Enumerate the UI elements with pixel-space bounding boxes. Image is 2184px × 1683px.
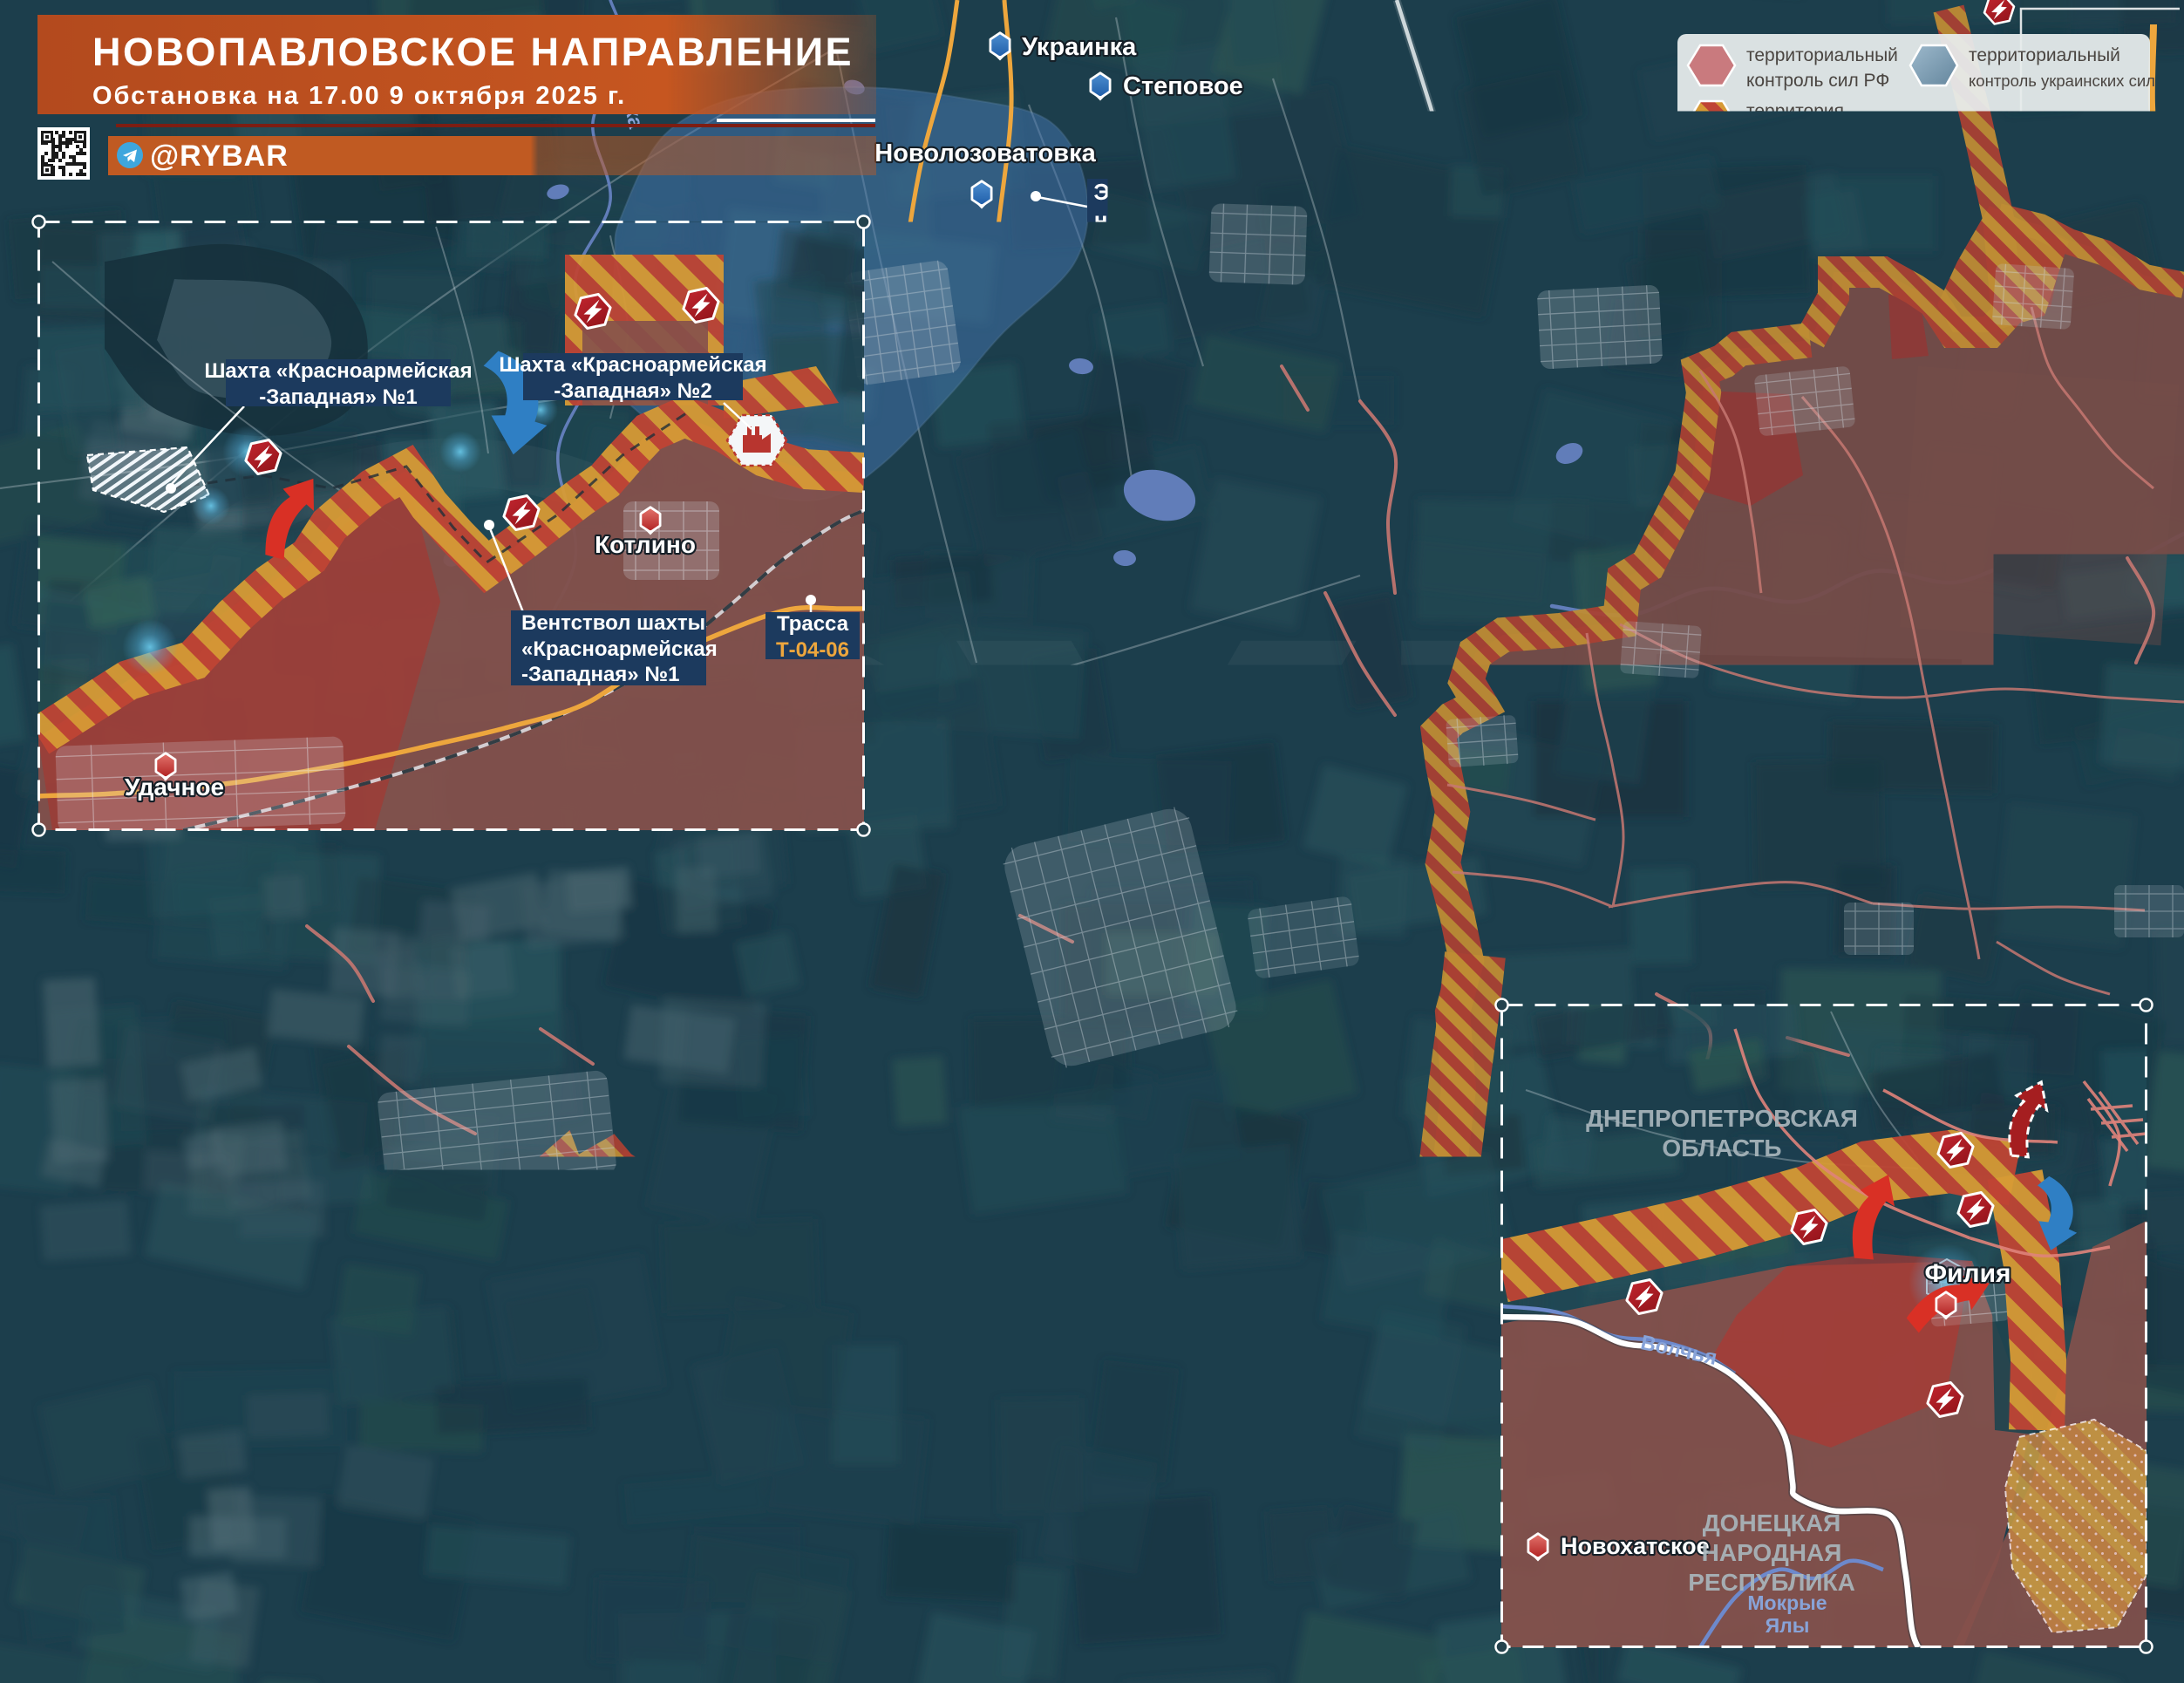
svg-text:Степовое: Степовое (1123, 72, 1243, 100)
svg-text:Новотроицкое: Новотроицкое (2003, 612, 2182, 640)
svg-text:Мокрые: Мокрые (804, 1571, 887, 1594)
svg-text:ДОНЕЦКАЯ: ДОНЕЦКАЯ (1862, 727, 2016, 758)
svg-text:Филия: Филия (912, 1165, 1007, 1197)
svg-text:Гавриловка: Гавриловка (58, 1217, 207, 1245)
svg-text:Новоподгородное: Новоподгородное (1390, 308, 1617, 336)
svg-text:Филия: Филия (1924, 1259, 2011, 1288)
svg-text:Балка: Балка (1045, 1195, 1111, 1219)
svg-text:Новохатское: Новохатское (1561, 1533, 1710, 1559)
svg-text:Толстой: Толстой (664, 1433, 765, 1461)
svg-text:@RYBAR: @RYBAR (150, 140, 289, 173)
svg-text:Новосергеевка: Новосергеевка (1703, 536, 1892, 564)
svg-text:Т-04-06: Т-04-06 (1430, 436, 1507, 460)
svg-text:Новооленовка: Новооленовка (1969, 889, 2152, 916)
svg-text:территориальный: территориальный (1969, 45, 2120, 65)
svg-text:Новоалександровка: Новоалександровка (1739, 669, 1994, 697)
svg-text:Сухарева Балка: Сухарева Балка (1235, 126, 1437, 154)
svg-text:НОВОПАВЛОВСКОЕ НАПРАВЛЕНИЕ: НОВОПАВЛОВСКОЕ НАПРАВЛЕНИЕ (92, 30, 854, 74)
svg-text:ОБЛАСТЬ: ОБЛАСТЬ (1662, 1134, 1781, 1162)
svg-text:Котлино: Котлино (1983, 262, 2087, 290)
svg-text:Шахта «Красноармейская: Шахта «Красноармейская (1551, 228, 1808, 250)
svg-text:Надеждинка: Надеждинка (1794, 861, 1949, 889)
svg-text:Муравка: Муравка (1378, 702, 1485, 730)
svg-text:Котлино: Котлино (595, 531, 696, 558)
svg-text:Звезда: Звезда (791, 1446, 880, 1474)
svg-text:Солёное: Солёное (1928, 500, 2036, 528)
svg-text:Украинка: Украинка (1022, 33, 1137, 61)
svg-text:Шахта «Красноармейская: Шахта «Красноармейская (499, 353, 766, 377)
svg-text:контроль украинских сил: контроль украинских сил (1969, 72, 2155, 90)
svg-text:Поддубное: Поддубное (671, 1624, 812, 1652)
svg-text:Мокрые: Мокрые (1747, 1591, 1827, 1614)
svg-text:Трасса: Трасса (777, 612, 849, 636)
svg-text:Зеленый Угол: Зеленый Угол (1309, 1570, 1484, 1598)
svg-text:Новопавловка: Новопавловка (1024, 910, 1220, 941)
svg-text:Ореховая: Ореховая (1045, 1223, 1150, 1247)
svg-text:Ландшафтный: Ландшафтный (1172, 1299, 1325, 1323)
svg-text:«Красноармейская: «Красноармейская (521, 637, 718, 661)
svg-text:Ялы: Ялы (1766, 1614, 1810, 1637)
svg-text:РЕСПУБЛИКА: РЕСПУБЛИКА (1847, 794, 2031, 824)
svg-text:Шахта «Красноармейская: Шахта «Красноармейская (204, 359, 472, 383)
svg-text:Подгавриловка: Подгавриловка (73, 1341, 268, 1369)
svg-text:Котляровка: Котляровка (1534, 864, 1681, 892)
svg-text:боестолкновения: боестолкновения (1746, 168, 1894, 188)
svg-text:Трасса: Трасса (1431, 410, 1507, 434)
svg-text:Зеленый Гай: Зеленый Гай (509, 1298, 672, 1326)
svg-text:Вентствол шахты: Вентствол шахты (521, 611, 705, 635)
svg-text:заказник «Балка Ореховая»: заказник «Балка Ореховая» (1172, 1325, 1460, 1349)
svg-text:Обстановка на 17.00 9 октября: Обстановка на 17.00 9 октября 2025 г. (92, 82, 626, 110)
svg-text:Волково: Волково (2022, 429, 2137, 460)
svg-text:Удачное: Удачное (1752, 412, 1861, 442)
svg-text:Молодецкое: Молодецкое (1538, 390, 1692, 418)
svg-text:Райполье: Райполье (1196, 270, 1318, 298)
svg-text:«Лилия»: «Лилия» (774, 1180, 863, 1203)
svg-text:Новолозоватовка: Новолозоватовка (874, 140, 1096, 167)
svg-text:территориальный: территориальный (1746, 45, 1898, 65)
svg-text:-Западная» №1: -Западная» №1 (1603, 253, 1755, 276)
svg-text:-Западная» №1: -Западная» №1 (521, 663, 679, 686)
svg-text:Ивановка: Ивановка (428, 1126, 549, 1154)
svg-text:Новоукраинка: Новоукраинка (1269, 1477, 1448, 1505)
svg-text:ДНЕПРОПЕТРОВСКАЯ: ДНЕПРОПЕТРОВСКАЯ (473, 862, 774, 892)
svg-text:населения: населения (1094, 207, 1214, 233)
svg-text:Беляковка: Беляковка (1337, 623, 1472, 651)
svg-text:Т-04-06: Т-04-06 (776, 638, 849, 662)
svg-text:ОБЛАСТЬ: ОБЛАСТЬ (558, 895, 691, 925)
svg-text:Эвакуация: Эвакуация (1093, 179, 1213, 205)
svg-text:Успеновка: Успеновка (1852, 615, 1983, 643)
svg-text:Ялта: Ялта (909, 1389, 970, 1417)
svg-text:Новониколаевка: Новониколаевка (1632, 617, 1841, 645)
svg-text:ДОНЕЦКАЯ: ДОНЕЦКАЯ (1703, 1509, 1841, 1537)
svg-text:Удачное: Удачное (125, 773, 224, 801)
svg-text:Искра: Искра (338, 1441, 413, 1468)
svg-text:Новохатское: Новохатское (613, 1332, 772, 1359)
svg-text:Новоелизаветовка: Новоелизаветовка (1818, 949, 2053, 977)
svg-text:НАРОДНАЯ: НАРОДНАЯ (1861, 760, 2017, 791)
svg-text:Межевая: Межевая (921, 301, 1038, 331)
svg-text:территория: территория (1746, 101, 1844, 121)
svg-text:-Западная» №1: -Западная» №1 (259, 385, 417, 409)
svg-text:Ялы: Ялы (823, 1595, 869, 1618)
svg-text:боевых действий: боевых действий (1746, 126, 1893, 146)
svg-text:Лагерь: Лагерь (782, 1154, 855, 1177)
svg-text:Дачное: Дачное (1157, 1427, 1254, 1458)
svg-text:НАРОДНАЯ: НАРОДНАЯ (1702, 1539, 1842, 1566)
svg-text:Запорожье: Запорожье (935, 1462, 1073, 1490)
svg-text:-Западная» №2: -Западная» №2 (554, 379, 711, 403)
svg-text:ДНЕПРОПЕТРОВСКАЯ: ДНЕПРОПЕТРОВСКАЯ (1586, 1105, 1858, 1132)
svg-text:Колона-Межевая: Колона-Межевая (1123, 378, 1332, 405)
svg-text:контроль сил РФ: контроль сил РФ (1746, 71, 1889, 91)
svg-text:укрепрайон: укрепрайон (1972, 112, 2071, 133)
